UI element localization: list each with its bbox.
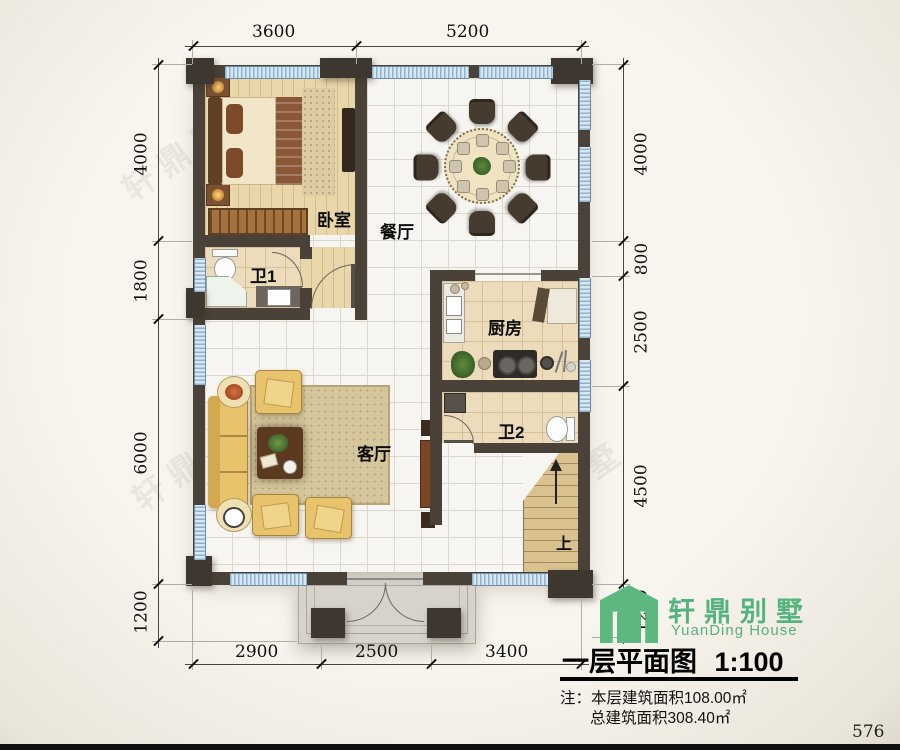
- place-setting: [457, 180, 470, 193]
- window: [230, 573, 307, 586]
- washing-machine: [444, 393, 466, 413]
- extension-line: [152, 641, 297, 642]
- window: [579, 360, 591, 412]
- window: [472, 573, 548, 586]
- dim-bottom-3: 3400: [485, 642, 528, 662]
- dim-bottom-1: 2900: [235, 642, 278, 662]
- toilet: [546, 416, 568, 442]
- room-label-bath1: 卫1: [250, 262, 276, 287]
- porch-column: [311, 608, 345, 638]
- dimension-line-bottom: [185, 664, 589, 665]
- dimension-line-left: [158, 58, 159, 648]
- coffee-table-plant: [268, 434, 288, 452]
- wall-living-top: [193, 308, 310, 320]
- kitchen-opening-threshold: [475, 273, 541, 275]
- bowl: [478, 357, 491, 370]
- bowl: [450, 284, 460, 294]
- dim-top-2: 5200: [446, 22, 489, 42]
- bed-runner-rug: [302, 88, 335, 196]
- dining-chair: [526, 155, 551, 181]
- extension-line: [321, 645, 322, 670]
- dining-chair: [414, 155, 439, 181]
- dim-right-2: 800: [632, 243, 652, 275]
- nightstand: [206, 184, 230, 206]
- logo-icon: [600, 585, 658, 643]
- dining-chair: [469, 211, 495, 236]
- room-label-bath2: 卫2: [498, 418, 524, 443]
- dining-chair: [469, 99, 495, 124]
- stair-direction-line: [555, 470, 557, 504]
- stove: [493, 350, 537, 378]
- wall-kitchen-bottom: [430, 380, 590, 392]
- drawing-title-text: 一层平面图: [562, 647, 697, 677]
- pillow: [226, 148, 243, 178]
- toilet-tank: [212, 249, 238, 257]
- window: [579, 80, 591, 130]
- place-setting: [503, 160, 516, 173]
- extension-line: [192, 590, 193, 670]
- window: [579, 147, 591, 202]
- wall-pier: [320, 58, 372, 78]
- wall-bedroom-dining: [355, 65, 367, 320]
- porch-column: [427, 608, 461, 638]
- page-number: 576: [852, 722, 884, 742]
- room-label-kitchen: 厨房: [488, 314, 522, 339]
- dim-bottom-2: 2500: [355, 642, 398, 662]
- dim-right-3: 2500: [632, 310, 652, 353]
- dimension-line-right: [623, 58, 624, 644]
- sink-basin: [267, 289, 291, 306]
- window: [194, 258, 206, 292]
- window: [479, 66, 553, 79]
- bowl: [566, 362, 576, 372]
- note-line-1: 注：本层建筑面积108.00㎡: [560, 686, 747, 708]
- kitchen-sink: [446, 319, 462, 334]
- pot: [540, 356, 554, 370]
- plate-decor: [223, 507, 245, 528]
- armchair: [255, 370, 302, 414]
- sofa-back: [208, 396, 220, 508]
- dimension-line-top: [185, 46, 589, 47]
- bath2-door-leaf: [444, 440, 473, 443]
- window: [194, 325, 206, 385]
- dim-left-3: 6000: [132, 431, 152, 474]
- side-table: [217, 376, 251, 408]
- armchair-cushion: [263, 378, 294, 408]
- drawing-title: 一层平面图 1:100: [562, 640, 784, 679]
- room-label-bedroom: 卧室: [317, 206, 351, 231]
- flower-bowl: [225, 384, 243, 400]
- window: [579, 278, 591, 338]
- extension-line: [431, 645, 432, 670]
- floor-plan-canvas: 轩鼎别墅 轩鼎别墅 轩鼎别墅 轩鼎别墅 轩鼎别墅: [0, 0, 900, 750]
- corner-pier: [186, 556, 212, 586]
- note-label: 注：: [560, 690, 591, 707]
- wall-bath1-stub: [300, 247, 312, 259]
- entry-threshold: [347, 578, 423, 580]
- dim-left-1: 4000: [132, 132, 152, 175]
- wall-bedroom-bath1: [193, 235, 310, 247]
- place-setting: [457, 142, 470, 155]
- place-setting: [476, 134, 489, 147]
- bed-blanket: [276, 97, 302, 185]
- drawing-scale: 1:100: [715, 647, 784, 677]
- kitchen-sink: [446, 296, 462, 316]
- armchair-cushion: [313, 505, 345, 533]
- room-label-living: 客厅: [357, 440, 391, 465]
- lamp: [212, 189, 224, 201]
- bowl: [461, 282, 469, 290]
- coffee-table-tray: [283, 460, 297, 474]
- stair-arrow-icon: [550, 459, 562, 471]
- side-table: [216, 498, 252, 532]
- wardrobe: [208, 208, 308, 235]
- dim-left-2: 1800: [132, 259, 152, 302]
- kitchen-plant: [451, 351, 475, 378]
- kitchen-counter-right: [547, 288, 577, 324]
- pillow: [226, 104, 243, 134]
- window: [194, 505, 206, 560]
- logo-text-en: YuanDing House: [671, 622, 798, 639]
- armchair: [252, 494, 299, 536]
- armchair-cushion: [260, 502, 291, 530]
- window: [225, 66, 320, 79]
- burner: [517, 356, 536, 375]
- room-label-dining: 餐厅: [380, 218, 414, 243]
- table-centerpiece-plant: [473, 157, 491, 175]
- bedroom-tv-cabinet: [342, 108, 355, 172]
- note-text-1: 本层建筑面积108.00㎡: [591, 690, 747, 707]
- burner: [498, 356, 517, 375]
- wall-pier: [186, 288, 204, 318]
- bottom-border-bar: [0, 744, 900, 750]
- bedroom-door-leaf: [351, 264, 355, 308]
- dim-top-1: 3600: [252, 22, 295, 42]
- bath1-vanity: [256, 286, 302, 307]
- place-setting: [496, 142, 509, 155]
- corner-pier: [186, 58, 214, 84]
- dim-right-1: 4000: [632, 132, 652, 175]
- window: [372, 66, 469, 79]
- wall-hallway-left: [430, 270, 442, 525]
- armchair: [305, 497, 352, 539]
- place-setting: [496, 180, 509, 193]
- title-underline: [560, 677, 798, 681]
- dim-right-4: 4500: [632, 464, 652, 507]
- wall-bath2-bottom: [474, 443, 590, 453]
- corner-pier: [548, 570, 593, 598]
- bed-headboard: [208, 97, 222, 185]
- place-setting: [449, 160, 462, 173]
- dim-left-4: 1200: [132, 590, 152, 633]
- note-line-2: 总建筑面积308.40㎡: [590, 706, 730, 728]
- place-setting: [476, 188, 489, 201]
- stairs-up-label: 上: [556, 530, 572, 554]
